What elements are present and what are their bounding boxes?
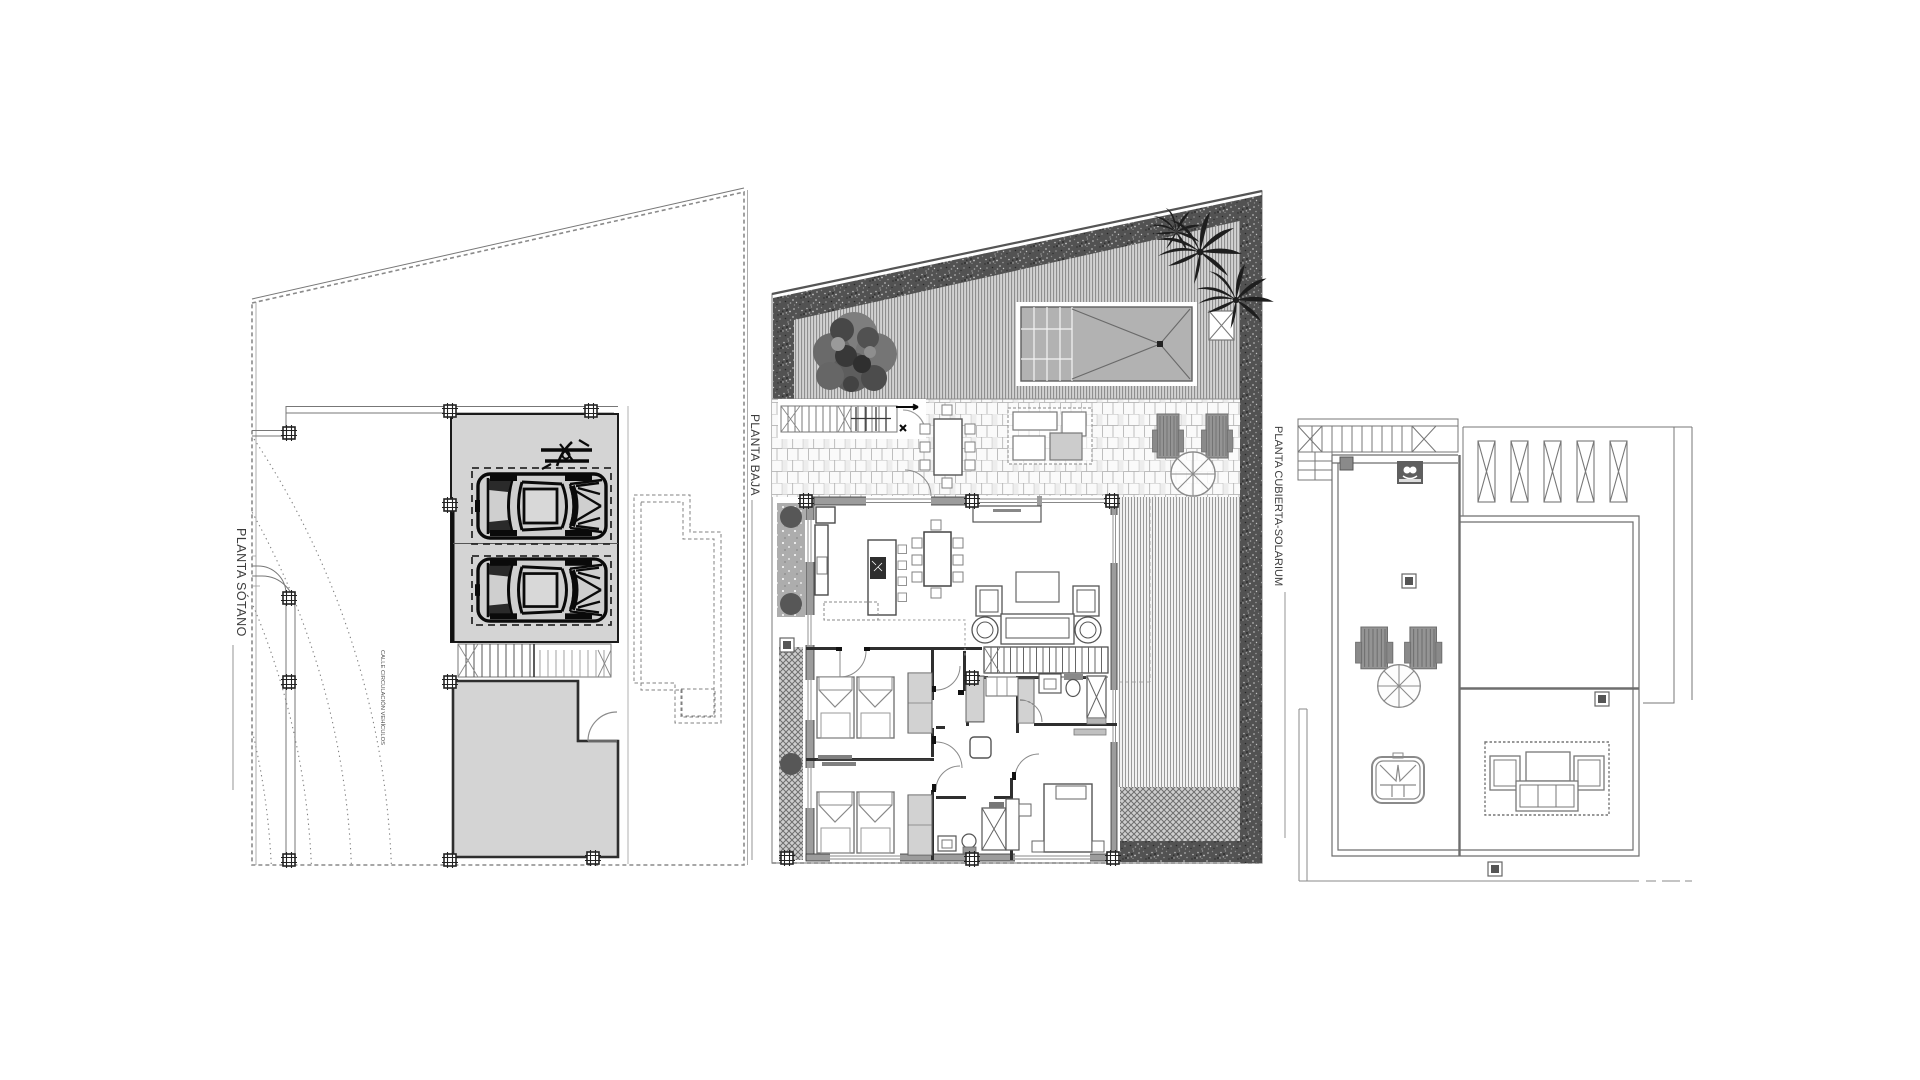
svg-text:CALLE CIRCULACIÓN VEHÍCULOS: CALLE CIRCULACIÓN VEHÍCULOS <box>379 650 386 745</box>
svg-text:PLANTA CUBIERTA-SOLARIUM: PLANTA CUBIERTA-SOLARIUM <box>1272 426 1284 586</box>
svg-text:PLANTA BAJA: PLANTA BAJA <box>748 414 762 496</box>
svg-text:PLANTA SÓTANO: PLANTA SÓTANO <box>234 528 249 637</box>
